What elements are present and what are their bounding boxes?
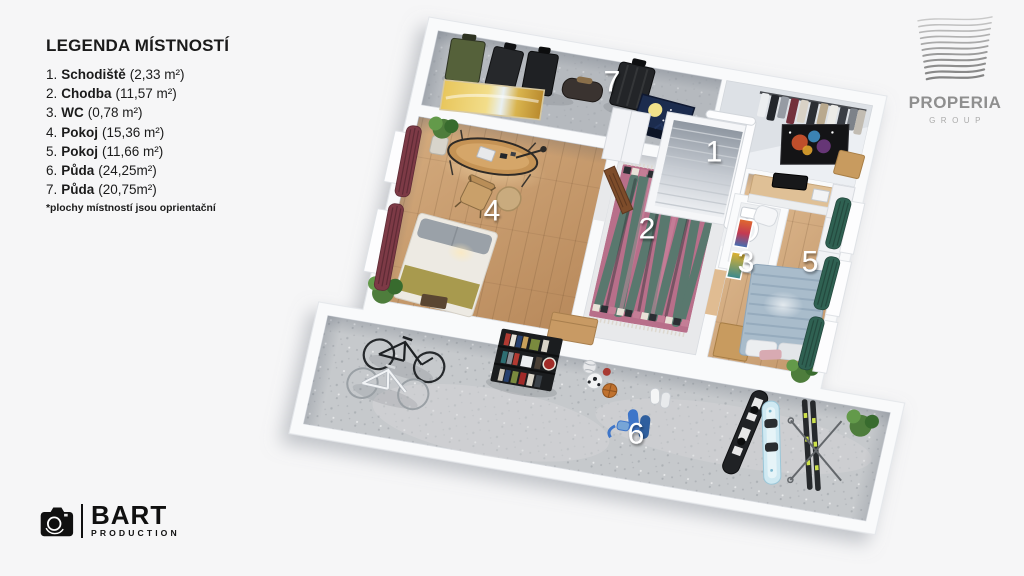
legend-title: LEGENDA MÍSTNOSTÍ bbox=[46, 36, 276, 56]
room-number-3: 3 bbox=[738, 246, 755, 279]
room-number-1: 1 bbox=[706, 136, 723, 169]
legend-list: 1.Schodiště(2,33 m²) 2.Chodba(11,57 m²) … bbox=[46, 65, 276, 199]
properia-arcs-icon bbox=[902, 14, 1008, 86]
room-number-7: 7 bbox=[604, 66, 621, 99]
room-number-6: 6 bbox=[628, 418, 645, 451]
room-number-2: 2 bbox=[639, 213, 656, 246]
bart-wordmark: BART bbox=[91, 504, 180, 527]
properia-wordmark: PROPERIA bbox=[902, 93, 1008, 113]
legend-footnote: *plochy místností jsou oprientační bbox=[46, 203, 276, 214]
bart-text-block: BART PRODUCTION bbox=[81, 504, 180, 538]
legend-item-4: 4.Pokoj(15,36 m²) bbox=[46, 123, 276, 142]
bart-subtitle: PRODUCTION bbox=[91, 528, 180, 538]
properia-logo: PROPERIA GROUP bbox=[902, 14, 1008, 125]
legend-item-6: 6.Půda(24,25m²) bbox=[46, 161, 276, 180]
camera-icon bbox=[38, 498, 74, 544]
room-legend: LEGENDA MÍSTNOSTÍ 1.Schodiště(2,33 m²) 2… bbox=[46, 36, 276, 225]
pink-pillow bbox=[759, 349, 781, 360]
legend-item-3: 3.WC(0,78 m²) bbox=[46, 103, 276, 122]
snowboard-blue bbox=[762, 401, 781, 485]
monitor bbox=[772, 173, 808, 190]
laptop-room5 bbox=[811, 189, 829, 202]
legend-item-7: 7.Půda(20,75m²) bbox=[46, 180, 276, 199]
floorplan-visualization: 1 2 3 4 5 6 7 LEGENDA MÍSTNOSTÍ 1.Schodi… bbox=[0, 0, 1024, 576]
room-number-4: 4 bbox=[484, 195, 501, 228]
legend-item-2: 2.Chodba(11,57 m²) bbox=[46, 84, 276, 103]
properia-subtitle: GROUP bbox=[907, 116, 1008, 125]
room-number-5: 5 bbox=[802, 246, 819, 279]
legend-item-5: 5.Pokoj(11,66 m²) bbox=[46, 142, 276, 161]
bart-logo: BART PRODUCTION bbox=[38, 498, 180, 544]
legend-item-1: 1.Schodiště(2,33 m²) bbox=[46, 65, 276, 84]
